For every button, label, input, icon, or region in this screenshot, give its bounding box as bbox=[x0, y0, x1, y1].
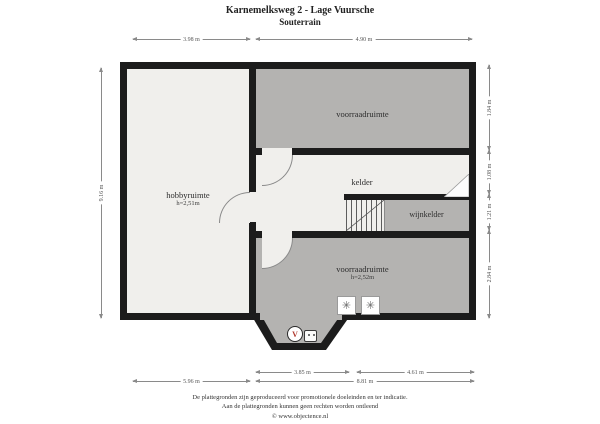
footer-copyright: © www.objectence.nl bbox=[0, 412, 600, 421]
footer-disclaimer: De plattegronden zijn geproduceerd voor … bbox=[0, 393, 600, 421]
room-name: hobbyruimte bbox=[130, 190, 246, 200]
floor-plan-page: Karnemelksweg 2 - Lage Vuursche Souterra… bbox=[0, 0, 600, 424]
footer-line-2: Aan de plattegronden kunnen geen rechten… bbox=[0, 402, 600, 411]
floor-plan: V ✳ ✳ hobbyruimte h=2,51m voorraadruimte… bbox=[0, 0, 600, 424]
dimension-bottom-inner-right: 4.61 m bbox=[357, 372, 474, 373]
dimension-bottom-inner-left: 3.85 m bbox=[256, 372, 349, 373]
room-label-wijnkelder: wijnkelder bbox=[384, 210, 469, 220]
inner-wall-vertical bbox=[249, 62, 256, 320]
dimension-right-3: 1.21 m bbox=[489, 194, 490, 230]
dimension-label: 9.16 m bbox=[99, 182, 105, 205]
dimension-right-4: 2.84 m bbox=[489, 230, 490, 318]
room-name: wijnkelder bbox=[384, 210, 469, 220]
room-label-kelder: kelder bbox=[256, 177, 468, 187]
dryer-mark: ✳ bbox=[366, 299, 375, 312]
dimension-top-left: 3.98 m bbox=[133, 39, 250, 40]
outer-wall-top bbox=[120, 62, 476, 69]
dimension-label: 3.85 m bbox=[291, 370, 314, 376]
dimension-label: 4.90 m bbox=[353, 37, 376, 43]
outer-wall-right bbox=[469, 62, 476, 320]
washer-mark: ✳ bbox=[342, 299, 351, 312]
staircase-direction-line bbox=[346, 200, 384, 231]
boiler-icon: V bbox=[287, 326, 303, 342]
dimension-label: 4.61 m bbox=[404, 370, 427, 376]
room-label-hobbyruimte: hobbyruimte h=2,51m bbox=[130, 190, 246, 208]
washer-icon: ✳ bbox=[337, 296, 356, 315]
dimension-top-right: 4.90 m bbox=[256, 39, 472, 40]
room-name: kelder bbox=[256, 177, 468, 187]
door-opening-kelder-storage-top bbox=[262, 148, 292, 155]
room-label-voorraadruimte-bottom: voorraadruimte h=2,52m bbox=[256, 264, 469, 282]
outer-wall-left bbox=[120, 62, 127, 320]
room-height-note: h=2,51m bbox=[130, 200, 246, 208]
meter-knobs bbox=[308, 334, 310, 336]
dryer-icon: ✳ bbox=[361, 296, 380, 315]
room-name: voorraadruimte bbox=[256, 264, 469, 274]
room-label-voorraadruimte-top: voorraadruimte bbox=[256, 109, 469, 119]
dimension-label: 5.96 m bbox=[180, 379, 203, 385]
dimension-bottom-outer-right: 8.81 m bbox=[256, 381, 474, 382]
door-opening-kelder-storage-bottom bbox=[262, 231, 292, 238]
dimension-label: 8.81 m bbox=[354, 379, 377, 385]
boiler-mark: V bbox=[292, 330, 298, 339]
dimension-label: 1.08 m bbox=[487, 161, 493, 184]
dimension-label: 1.84 m bbox=[487, 96, 493, 119]
meter-box-icon bbox=[304, 330, 317, 342]
dimension-bottom-outer-left: 5.96 m bbox=[133, 381, 250, 382]
dimension-label: 1.21 m bbox=[487, 201, 493, 224]
dimension-right-1: 1.84 m bbox=[489, 65, 490, 150]
room-height-note: h=2,52m bbox=[256, 274, 469, 282]
room-name: voorraadruimte bbox=[256, 109, 469, 119]
footer-line-1: De plattegronden zijn geproduceerd voor … bbox=[0, 393, 600, 402]
door-opening-hobby-kelder bbox=[249, 192, 256, 222]
dimension-label: 2.84 m bbox=[487, 263, 493, 286]
dimension-right-2: 1.08 m bbox=[489, 150, 490, 194]
dimension-left-side: 9.16 m bbox=[101, 68, 102, 318]
dimension-label: 3.98 m bbox=[180, 37, 203, 43]
staircase bbox=[346, 200, 384, 231]
